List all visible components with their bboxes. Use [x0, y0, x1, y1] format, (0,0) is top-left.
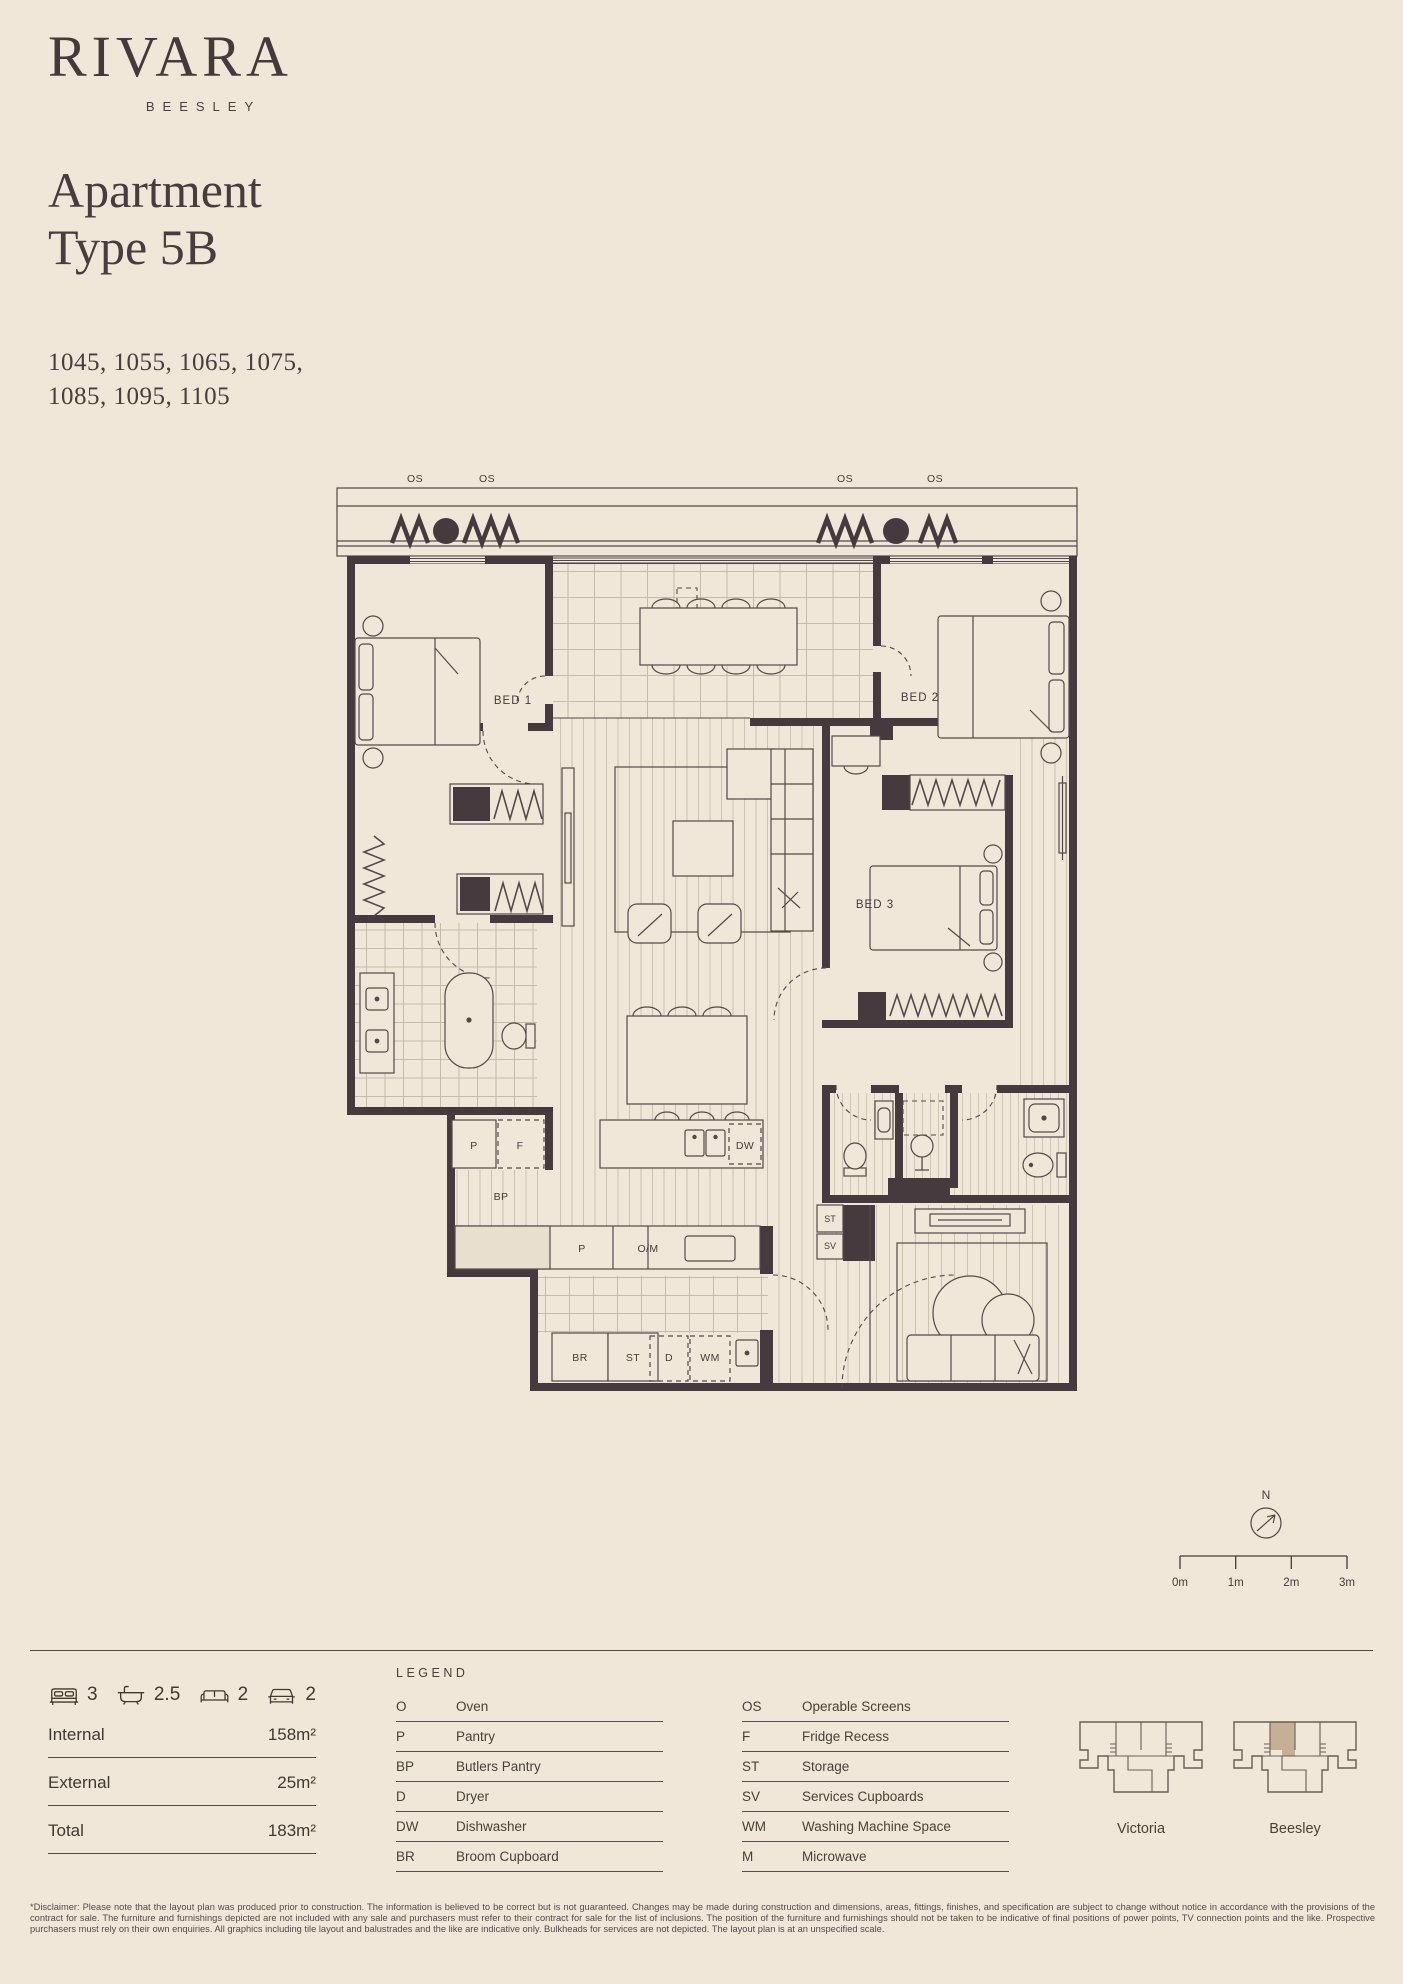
feature-icons-row: 3 2.5 2	[48, 1680, 316, 1710]
legend-row: BPButlers Pantry	[396, 1752, 663, 1782]
legend-abbr: P	[396, 1729, 456, 1744]
brochure-page: RIVARA BEESLEY Apartment Type 5B 1045, 1…	[0, 0, 1403, 1984]
room-label-bed2: BED 2	[901, 692, 939, 704]
bedrooms-count: 3	[87, 1684, 98, 1706]
bed-icon	[48, 1684, 80, 1707]
legend-abbr: D	[396, 1789, 456, 1804]
legend-abbr: WM	[742, 1819, 802, 1834]
legend-label: Microwave	[802, 1849, 867, 1864]
legend-label: Dryer	[456, 1789, 489, 1804]
pantry-fridge	[452, 1120, 544, 1168]
total-area-label: Total	[48, 1821, 84, 1841]
legend-abbr: OS	[742, 1699, 802, 1714]
dishwasher-label: DW	[736, 1140, 754, 1152]
parking-count: 2	[305, 1684, 316, 1706]
bath-icon	[115, 1684, 147, 1707]
legend-row: STStorage	[742, 1752, 1009, 1782]
bed2-robe	[912, 780, 1000, 805]
total-area-value: 183m²	[268, 1821, 316, 1841]
dining-table-lower	[627, 1007, 747, 1104]
legend-abbr: ST	[742, 1759, 802, 1774]
column	[883, 518, 909, 544]
legend-row: BRBroom Cupboard	[396, 1842, 663, 1872]
page-title: Apartment Type 5B	[48, 162, 262, 276]
legend-label: Services Cupboards	[802, 1789, 924, 1804]
services-label: SV	[824, 1241, 836, 1251]
disclaimer-text: *Disclaimer: Please note that the layout…	[30, 1902, 1375, 1935]
section-divider	[30, 1650, 1373, 1651]
scale-tick-1: 1m	[1228, 1577, 1244, 1589]
external-area-label: External	[48, 1773, 110, 1793]
living-feature: 2	[198, 1684, 249, 1706]
column	[433, 518, 459, 544]
legend-heading: LEGEND	[396, 1666, 468, 1680]
legend-abbr: F	[742, 1729, 802, 1744]
fridge-label: F	[517, 1140, 524, 1152]
bathrooms-feature: 2.5	[115, 1684, 180, 1707]
legend-abbr: DW	[396, 1819, 456, 1834]
legend-abbr: O	[396, 1699, 456, 1714]
bed2-furniture	[938, 591, 1069, 763]
living-count: 2	[238, 1684, 249, 1706]
washing-machine-label: WM	[700, 1352, 719, 1364]
butlers-pantry-label: BP	[494, 1191, 509, 1203]
page-title-line2: Type 5B	[48, 219, 262, 276]
balcony	[337, 488, 1077, 556]
external-area-value: 25m²	[277, 1773, 316, 1793]
bathrooms-count: 2.5	[154, 1684, 180, 1706]
os-label: OS	[927, 473, 943, 485]
legend-label: Operable Screens	[802, 1699, 911, 1714]
internal-area-value: 158m²	[268, 1725, 316, 1745]
internal-area-label: Internal	[48, 1725, 105, 1745]
legend-label: Broom Cupboard	[456, 1849, 559, 1864]
parking-feature: 2	[265, 1684, 316, 1706]
car-icon	[265, 1684, 298, 1706]
legend-label: Storage	[802, 1759, 849, 1774]
bed3-robe	[890, 995, 1002, 1016]
room-label-bed3: BED 3	[856, 899, 894, 911]
legend-row: MMicrowave	[742, 1842, 1009, 1872]
legend-row: OSOperable Screens	[742, 1692, 1009, 1722]
apartment-numbers: 1045, 1055, 1065, 1075, 1085, 1095, 1105	[48, 346, 303, 414]
external-area-row: External 25m²	[48, 1758, 316, 1806]
building-key-beesley: Beesley	[1220, 1712, 1370, 1837]
floor-plan: OS OS OS OS BED 1 BED 2 BED 3 P F BP DW …	[330, 468, 1080, 1413]
scale-tick-0: 0m	[1172, 1577, 1188, 1589]
legend-abbr: SV	[742, 1789, 802, 1804]
legend-label: Washing Machine Space	[802, 1819, 951, 1834]
dryer-label: D	[665, 1352, 673, 1364]
os-label: OS	[837, 473, 853, 485]
bed1-robes	[364, 784, 543, 916]
north-label: N	[1262, 1488, 1271, 1502]
hall-mirror	[1059, 776, 1066, 860]
legend-abbr: BR	[396, 1849, 456, 1864]
bedrooms-feature: 3	[48, 1684, 98, 1707]
os-label: OS	[407, 473, 423, 485]
page-title-line1: Apartment	[48, 162, 262, 219]
pantry-label: P	[470, 1140, 477, 1152]
legend-row: OOven	[396, 1692, 663, 1722]
legend-label: Oven	[456, 1699, 488, 1714]
compass-scale: N 0m 1m 2m 3m	[1150, 1478, 1360, 1593]
building-label: Beesley	[1220, 1821, 1370, 1837]
scale-tick-3: 3m	[1339, 1577, 1355, 1589]
legend-row: WMWashing Machine Space	[742, 1812, 1009, 1842]
bed1-furniture	[355, 616, 480, 768]
apartment-numbers-line1: 1045, 1055, 1065, 1075,	[48, 346, 303, 380]
total-area-row: Total 183m²	[48, 1806, 316, 1854]
dining-table-upper	[640, 599, 797, 674]
storage-label: ST	[824, 1214, 836, 1224]
legend-row: DWDishwasher	[396, 1812, 663, 1842]
brand-block: RIVARA BEESLEY	[48, 28, 353, 114]
legend-label: Butlers Pantry	[456, 1759, 541, 1774]
desk	[832, 736, 880, 774]
apartment-numbers-line2: 1085, 1095, 1105	[48, 380, 303, 414]
oven-microwave-label: O/M	[637, 1243, 658, 1255]
operable-screens	[392, 519, 956, 543]
legend-column-2: OSOperable Screens FFridge Recess STStor…	[742, 1692, 1009, 1872]
sofa-icon	[198, 1684, 231, 1706]
legend-row: FFridge Recess	[742, 1722, 1009, 1752]
highlighted-unit	[1270, 1722, 1295, 1756]
storage-label: ST	[626, 1352, 640, 1364]
room-label-bed1: BED 1	[494, 695, 532, 707]
brand-subtitle: BEESLEY	[48, 99, 353, 114]
kitchen-bench	[455, 1226, 760, 1269]
scale-tick-2: 2m	[1283, 1577, 1299, 1589]
broom-label: BR	[572, 1352, 587, 1364]
legend-row: PPantry	[396, 1722, 663, 1752]
pantry-label: P	[578, 1243, 585, 1255]
legend-abbr: BP	[396, 1759, 456, 1774]
north-arrow-icon	[1251, 1508, 1281, 1538]
summary-stats: 3 2.5 2	[48, 1680, 316, 1854]
scale-bar	[1180, 1556, 1347, 1569]
os-label: OS	[479, 473, 495, 485]
legend-label: Fridge Recess	[802, 1729, 889, 1744]
legend-row: SVServices Cupboards	[742, 1782, 1009, 1812]
legend-abbr: M	[742, 1849, 802, 1864]
legend-column-1: OOven PPantry BPButlers Pantry DDryer DW…	[396, 1692, 663, 1872]
legend-label: Pantry	[456, 1729, 495, 1744]
legend-row: DDryer	[396, 1782, 663, 1812]
internal-area-row: Internal 158m²	[48, 1710, 316, 1758]
building-label: Victoria	[1066, 1821, 1216, 1837]
brand-logo: RIVARA	[48, 28, 353, 86]
legend-label: Dishwasher	[456, 1819, 527, 1834]
building-key-victoria: Victoria	[1066, 1712, 1216, 1837]
